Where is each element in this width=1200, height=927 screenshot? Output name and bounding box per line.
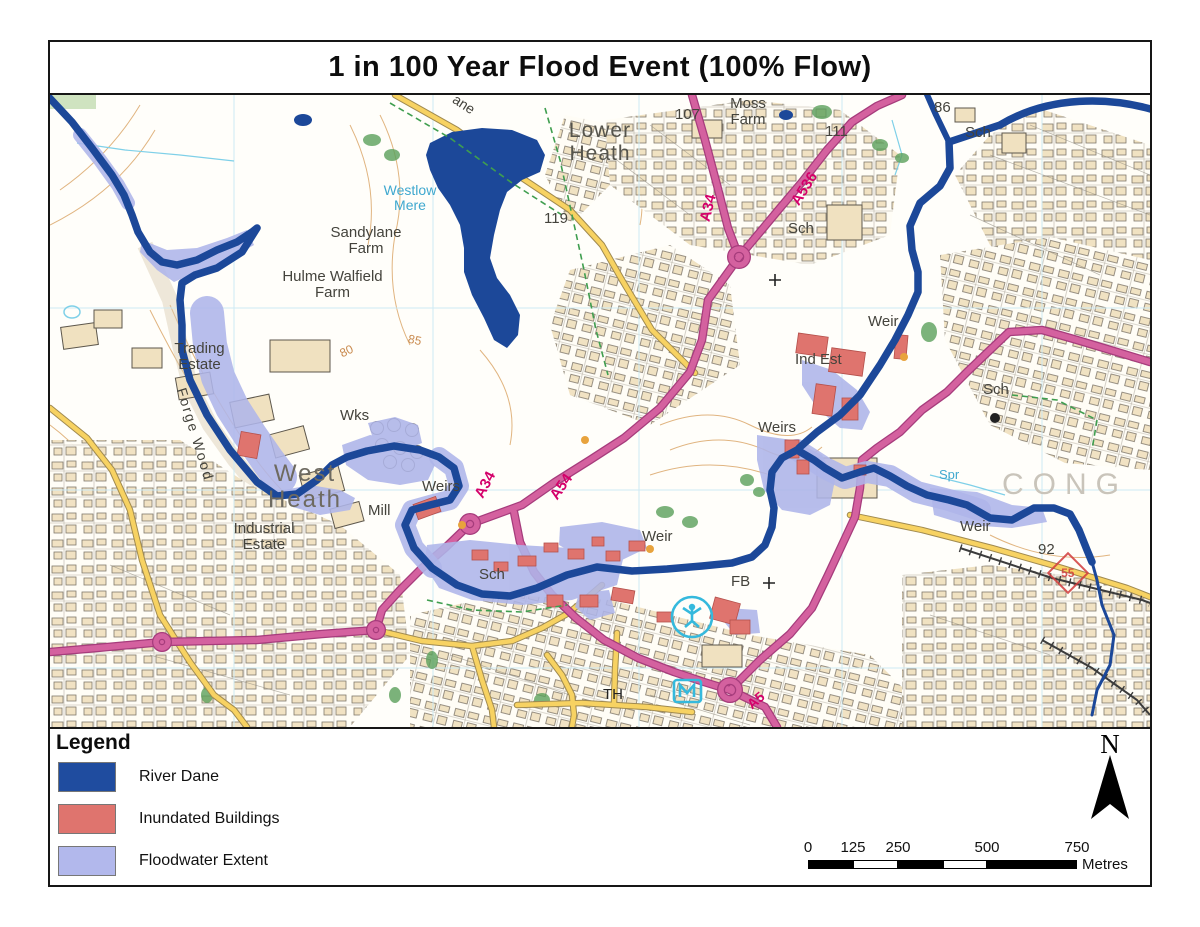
legend-row-river-dane: River Dane bbox=[58, 762, 219, 792]
scale-tick-500: 500 bbox=[974, 839, 999, 856]
page: { "title": "1 in 100 Year Flood Event (1… bbox=[0, 0, 1200, 927]
legend-row-inundated-buildings: Inundated Buildings bbox=[58, 804, 280, 834]
scale-unit-label: Metres bbox=[1082, 856, 1128, 873]
legend-swatch-inundated-buildings bbox=[58, 804, 116, 834]
scale-segment-2 bbox=[853, 860, 898, 869]
weir-dot-4 bbox=[458, 521, 466, 529]
scale-tick-0: 0 bbox=[804, 839, 812, 856]
map-frame: 1 in 100 Year Flood Event (100% Flow) bbox=[48, 40, 1152, 887]
north-arrow-icon bbox=[1086, 755, 1134, 825]
weir-dot bbox=[646, 545, 654, 553]
weir-dot-2 bbox=[900, 353, 908, 361]
title-bar: 1 in 100 Year Flood Event (100% Flow) bbox=[50, 42, 1150, 95]
map-canvas: Lower Heath Moss Farm 107 86 Sch 111 Sch… bbox=[50, 95, 1150, 729]
pond-2 bbox=[779, 110, 793, 120]
scale-tick-250: 250 bbox=[885, 839, 910, 856]
map-title: 1 in 100 Year Flood Event (100% Flow) bbox=[328, 51, 871, 84]
pond bbox=[294, 114, 312, 126]
scale-segment-5 bbox=[987, 860, 1077, 869]
cycle-route-55-number: 55 bbox=[1061, 566, 1074, 580]
map-artwork bbox=[50, 95, 1150, 727]
scale-segment-3 bbox=[898, 860, 943, 869]
school-dot bbox=[990, 413, 1000, 423]
scale-tick-750: 750 bbox=[1064, 839, 1089, 856]
legend-label-inundated-buildings: Inundated Buildings bbox=[139, 810, 280, 828]
legend-heading: Legend bbox=[56, 731, 131, 755]
weir-dot-3 bbox=[581, 436, 589, 444]
scale-segment-4 bbox=[943, 860, 987, 869]
legend-swatch-floodwater-extent bbox=[58, 846, 116, 876]
legend-swatch-river-dane bbox=[58, 762, 116, 792]
legend-row-floodwater-extent: Floodwater Extent bbox=[58, 846, 268, 876]
bottom-band: Legend River Dane Inundated Buildings Fl… bbox=[50, 729, 1150, 883]
scale-tick-125: 125 bbox=[840, 839, 865, 856]
scale-segment-1 bbox=[808, 860, 853, 869]
legend-label-floodwater-extent: Floodwater Extent bbox=[139, 852, 268, 870]
legend-label-river-dane: River Dane bbox=[139, 768, 219, 786]
